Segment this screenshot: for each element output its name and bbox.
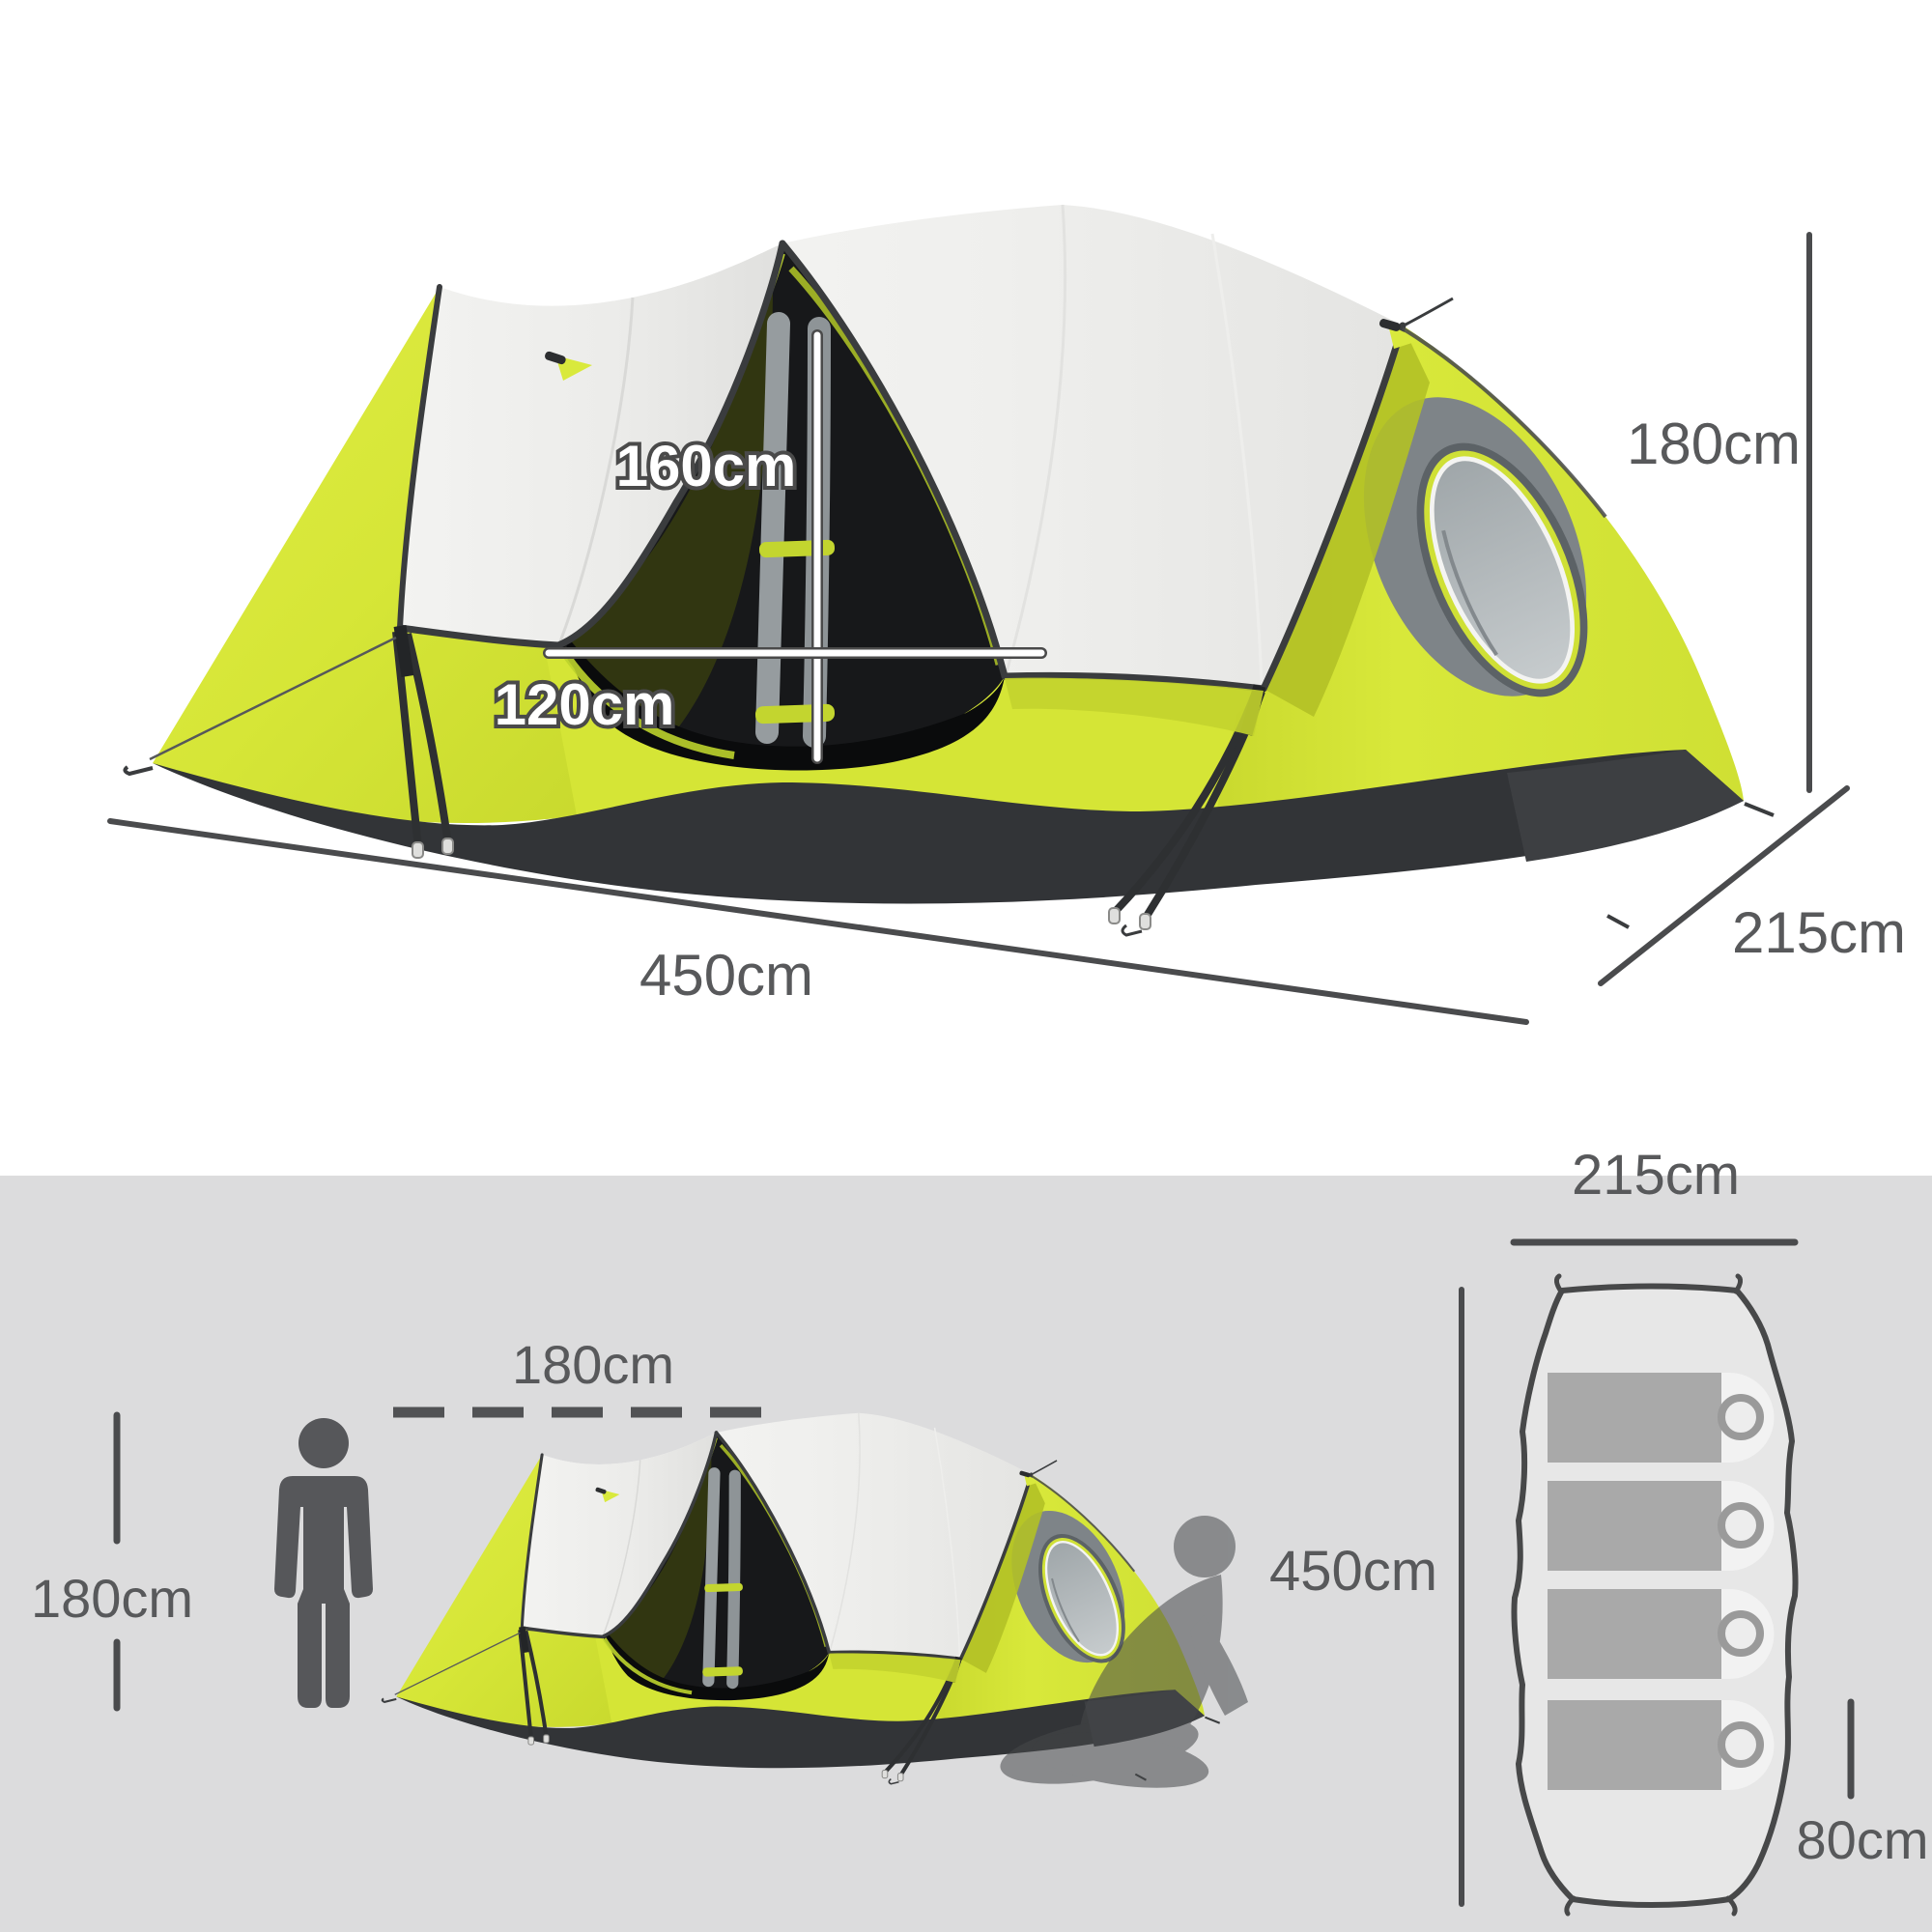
svg-text:450cm: 450cm [1269, 1540, 1437, 1603]
svg-text:215cm: 215cm [1572, 1144, 1740, 1207]
svg-text:180cm: 180cm [1627, 412, 1801, 476]
svg-text:80cm: 80cm [1797, 1809, 1929, 1870]
svg-text:215cm: 215cm [1732, 900, 1906, 965]
svg-text:120cm: 120cm [495, 672, 675, 737]
svg-text:160cm: 160cm [616, 434, 797, 498]
svg-text:450cm: 450cm [639, 943, 813, 1008]
svg-text:180cm: 180cm [31, 1568, 193, 1629]
svg-text:180cm: 180cm [512, 1334, 674, 1395]
